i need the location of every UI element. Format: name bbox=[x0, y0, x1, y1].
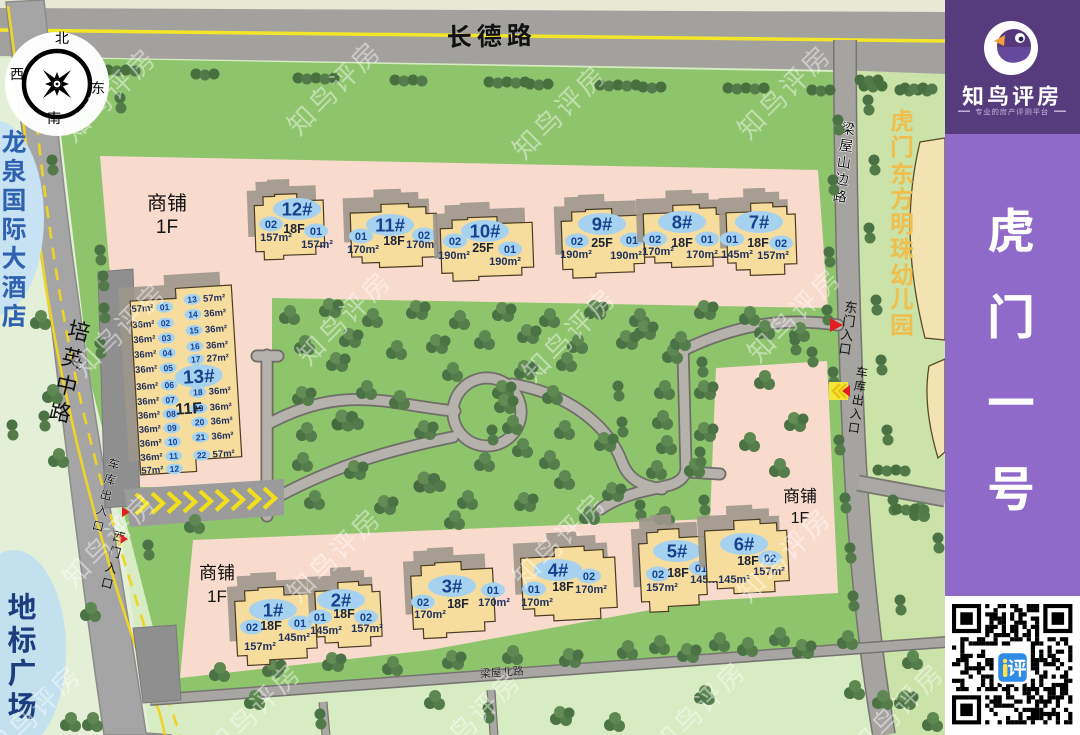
svg-text:01: 01 bbox=[294, 618, 306, 630]
svg-text:12#: 12# bbox=[282, 198, 313, 219]
svg-text:01: 01 bbox=[314, 612, 326, 624]
svg-text:157m²: 157m² bbox=[757, 250, 789, 262]
svg-text:02: 02 bbox=[571, 236, 583, 248]
svg-text:36m²: 36m² bbox=[206, 339, 229, 351]
svg-text:01: 01 bbox=[310, 226, 322, 238]
svg-text:20: 20 bbox=[195, 417, 205, 428]
svg-text:27m²: 27m² bbox=[206, 352, 229, 364]
svg-text:25F: 25F bbox=[591, 236, 613, 250]
svg-text:01: 01 bbox=[626, 235, 638, 247]
svg-text:190m²: 190m² bbox=[560, 249, 592, 261]
svg-text:145m²: 145m² bbox=[721, 249, 753, 261]
svg-text:02: 02 bbox=[417, 597, 429, 609]
svg-text:18F: 18F bbox=[447, 597, 469, 611]
svg-text:36m²: 36m² bbox=[205, 323, 228, 335]
svg-text:01: 01 bbox=[355, 231, 367, 243]
svg-text:7#: 7# bbox=[749, 211, 770, 232]
svg-text:36m²: 36m² bbox=[133, 334, 156, 346]
svg-text:1F: 1F bbox=[207, 587, 227, 606]
svg-text:21: 21 bbox=[195, 432, 205, 443]
svg-text:1F: 1F bbox=[156, 217, 178, 238]
svg-text:11#: 11# bbox=[375, 214, 405, 235]
svg-text:02: 02 bbox=[652, 569, 664, 581]
svg-text:02: 02 bbox=[583, 571, 595, 583]
svg-text:02: 02 bbox=[649, 234, 661, 246]
svg-text:170m²: 170m² bbox=[686, 249, 718, 261]
svg-text:157m²: 157m² bbox=[301, 239, 333, 251]
svg-text:157m²: 157m² bbox=[351, 623, 383, 635]
svg-text:15: 15 bbox=[189, 325, 199, 336]
svg-text:36m²: 36m² bbox=[210, 415, 233, 427]
svg-text:170m²: 170m² bbox=[347, 244, 379, 256]
svg-text:22: 22 bbox=[197, 450, 207, 461]
svg-text:18F: 18F bbox=[260, 619, 282, 633]
svg-text:170m²: 170m² bbox=[406, 239, 438, 251]
svg-text:145m²: 145m² bbox=[310, 625, 342, 637]
svg-text:18F: 18F bbox=[383, 234, 405, 248]
svg-text:01: 01 bbox=[487, 585, 499, 597]
svg-text:190m²: 190m² bbox=[438, 250, 470, 262]
svg-text:01: 01 bbox=[726, 234, 738, 246]
svg-text:16: 16 bbox=[190, 341, 200, 352]
svg-text:06: 06 bbox=[164, 380, 174, 391]
svg-text:36m²: 36m² bbox=[136, 381, 159, 393]
svg-text:6#: 6# bbox=[734, 533, 755, 554]
svg-text:170m²: 170m² bbox=[478, 597, 510, 609]
svg-text:5#: 5# bbox=[667, 540, 688, 561]
svg-text:17: 17 bbox=[191, 354, 201, 365]
svg-text:36m²: 36m² bbox=[138, 410, 161, 422]
svg-text:157m²: 157m² bbox=[260, 232, 292, 244]
svg-text:09: 09 bbox=[167, 423, 177, 434]
svg-text:170m²: 170m² bbox=[642, 246, 674, 258]
svg-text:36m²: 36m² bbox=[135, 364, 158, 376]
svg-text:13: 13 bbox=[187, 294, 197, 305]
svg-text:18: 18 bbox=[193, 387, 203, 398]
svg-text:18F: 18F bbox=[333, 607, 355, 621]
svg-text:157m²: 157m² bbox=[753, 566, 785, 578]
svg-text:18F: 18F bbox=[747, 236, 769, 250]
svg-text:18F: 18F bbox=[671, 236, 693, 250]
svg-text:25F: 25F bbox=[472, 241, 494, 255]
svg-text:36m²: 36m² bbox=[140, 452, 163, 464]
svg-text:57m²: 57m² bbox=[141, 464, 164, 476]
svg-text:157m²: 157m² bbox=[646, 582, 678, 594]
svg-text:170m²: 170m² bbox=[414, 609, 446, 621]
svg-text:170m²: 170m² bbox=[521, 597, 553, 609]
svg-text:01: 01 bbox=[504, 244, 516, 256]
svg-text:145m²: 145m² bbox=[718, 574, 750, 586]
svg-text:57m²: 57m² bbox=[212, 448, 235, 460]
svg-text:04: 04 bbox=[162, 348, 172, 359]
svg-text:01: 01 bbox=[528, 584, 540, 596]
svg-text:36m²: 36m² bbox=[211, 430, 234, 442]
svg-text:10: 10 bbox=[168, 437, 178, 448]
svg-text:1#: 1# bbox=[263, 599, 284, 620]
svg-text:36m²: 36m² bbox=[139, 438, 162, 450]
svg-text:11: 11 bbox=[169, 451, 179, 462]
svg-text:18F: 18F bbox=[667, 566, 689, 580]
svg-text:14: 14 bbox=[188, 309, 198, 320]
svg-text:10#: 10# bbox=[470, 220, 501, 241]
svg-text:18F: 18F bbox=[552, 580, 574, 594]
svg-text:02: 02 bbox=[265, 219, 277, 231]
svg-text:8#: 8# bbox=[672, 211, 693, 232]
svg-text:13#: 13# bbox=[182, 366, 215, 389]
svg-text:57m²: 57m² bbox=[203, 292, 226, 304]
svg-text:145m²: 145m² bbox=[278, 632, 310, 644]
svg-text:36m²: 36m² bbox=[134, 349, 157, 361]
svg-text:190m²: 190m² bbox=[610, 250, 642, 262]
svg-text:02: 02 bbox=[160, 318, 170, 329]
svg-text:05: 05 bbox=[163, 363, 173, 374]
svg-text:03: 03 bbox=[161, 333, 171, 344]
svg-text:12: 12 bbox=[169, 464, 179, 475]
svg-text:36m²: 36m² bbox=[137, 396, 160, 408]
svg-text:36m²: 36m² bbox=[138, 424, 161, 436]
svg-text:11F: 11F bbox=[175, 400, 203, 419]
svg-text:190m²: 190m² bbox=[489, 256, 521, 268]
svg-text:3#: 3# bbox=[442, 575, 463, 596]
svg-text:36m²: 36m² bbox=[209, 401, 232, 413]
svg-text:02: 02 bbox=[246, 622, 258, 634]
svg-text:02: 02 bbox=[775, 238, 787, 250]
svg-text:02: 02 bbox=[449, 236, 461, 248]
svg-text:07: 07 bbox=[165, 395, 175, 406]
svg-text:36m²: 36m² bbox=[204, 307, 227, 319]
svg-text:4#: 4# bbox=[548, 559, 569, 580]
svg-text:01: 01 bbox=[701, 234, 713, 246]
svg-text:9#: 9# bbox=[592, 213, 613, 234]
svg-text:36m²: 36m² bbox=[208, 385, 231, 397]
svg-text:157m²: 157m² bbox=[244, 641, 276, 653]
svg-text:170m²: 170m² bbox=[575, 584, 607, 596]
